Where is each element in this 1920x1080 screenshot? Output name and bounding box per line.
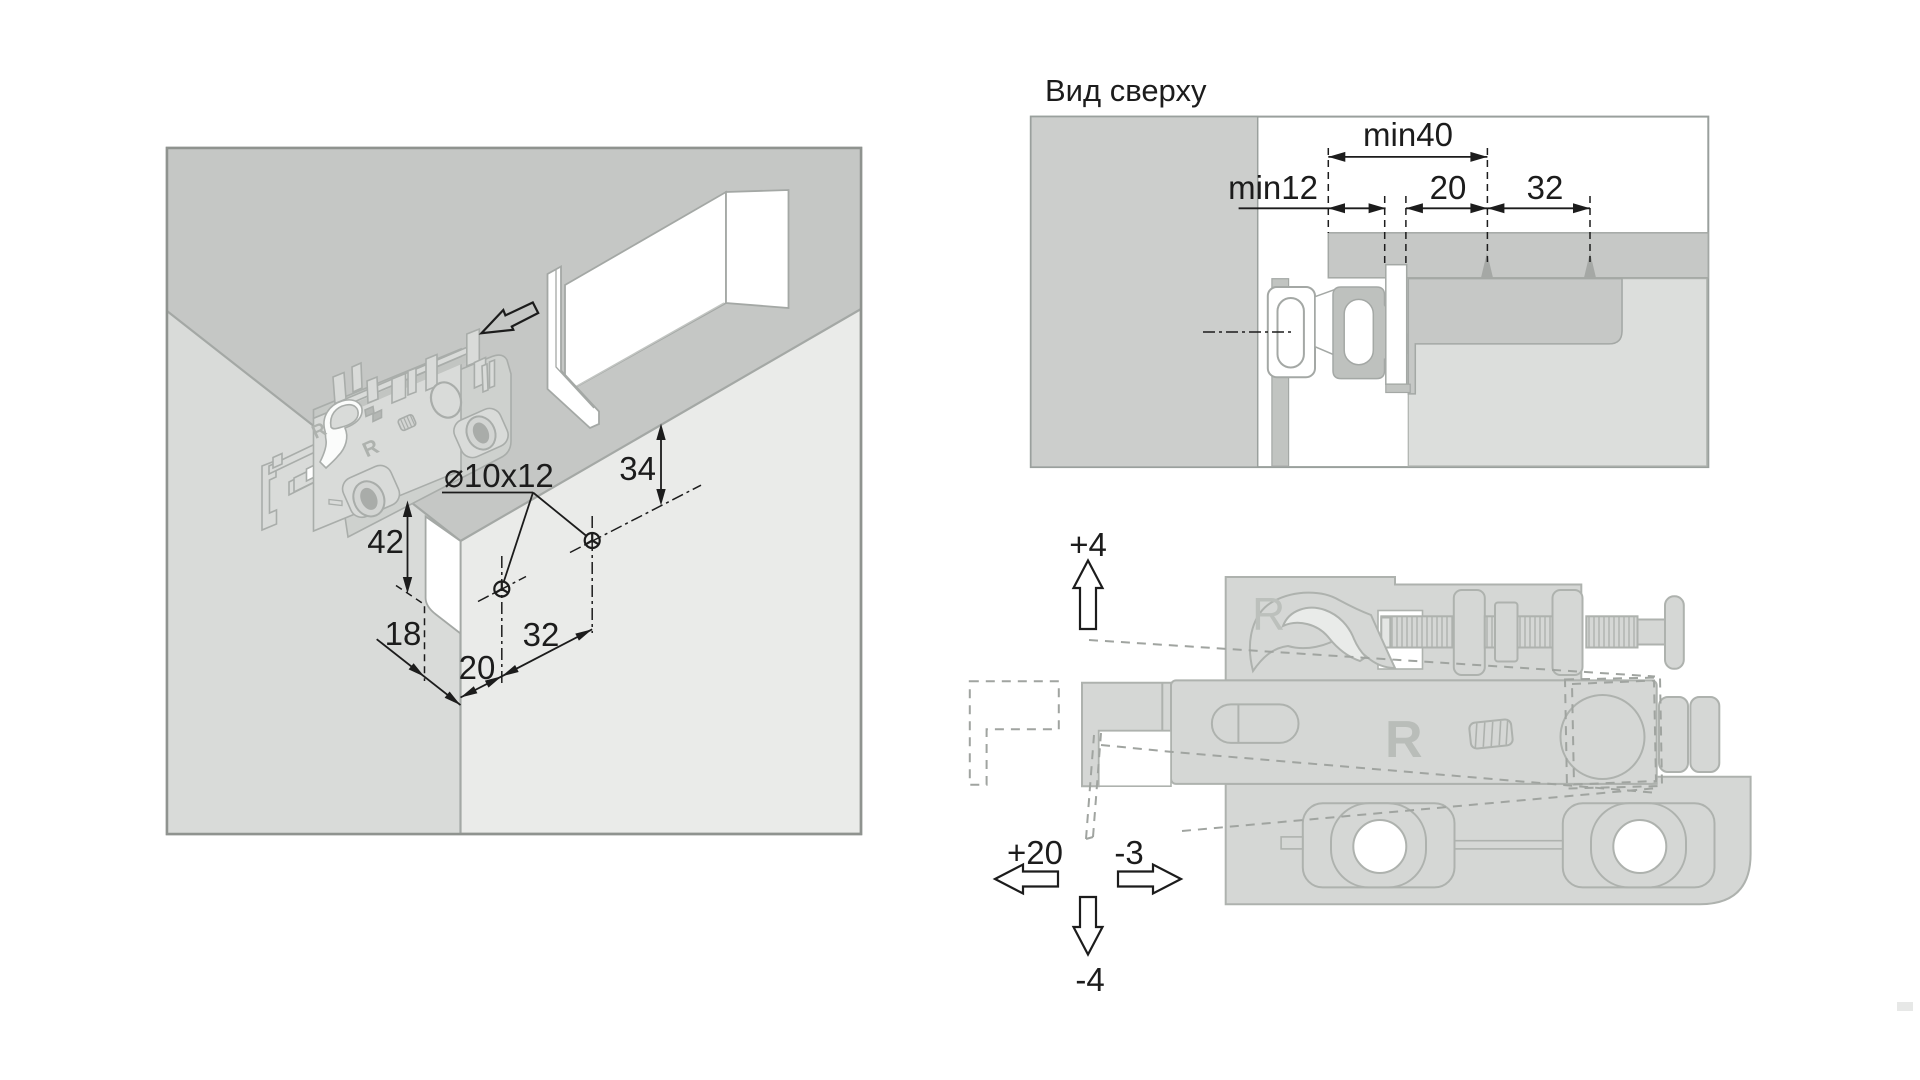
svg-text:42: 42 — [367, 523, 404, 560]
svg-text:⌀10x12: ⌀10x12 — [444, 457, 554, 494]
svg-text:Вид сверху: Вид сверху — [1045, 73, 1207, 108]
svg-text:-3: -3 — [1114, 834, 1143, 871]
svg-text:20: 20 — [1430, 169, 1467, 206]
svg-text:32: 32 — [1527, 169, 1564, 206]
svg-text:R: R — [1252, 588, 1285, 640]
svg-text:+4: +4 — [1069, 526, 1107, 563]
svg-text:R: R — [1385, 711, 1423, 769]
svg-text:18: 18 — [385, 615, 422, 652]
svg-text:min12: min12 — [1228, 169, 1318, 206]
svg-text:+20: +20 — [1007, 834, 1063, 871]
svg-text:-4: -4 — [1075, 961, 1104, 998]
svg-text:min40: min40 — [1363, 116, 1453, 153]
svg-text:20: 20 — [459, 649, 496, 686]
svg-text:32: 32 — [523, 616, 560, 653]
svg-text:34: 34 — [619, 450, 656, 487]
